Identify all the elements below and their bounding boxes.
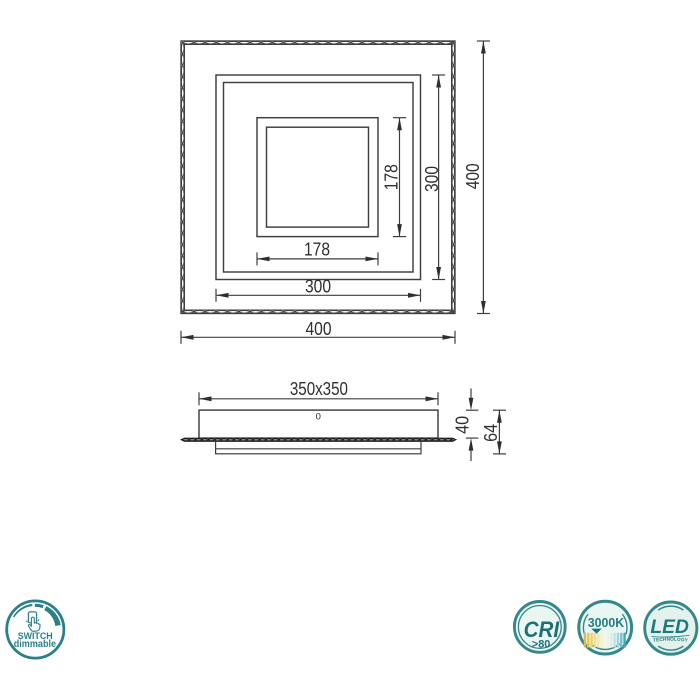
svg-text:LED: LED	[650, 617, 689, 638]
svg-text:dimmable: dimmable	[14, 639, 57, 650]
svg-text:300: 300	[422, 166, 442, 192]
svg-text:>80: >80	[532, 638, 551, 650]
svg-text:3000K: 3000K	[588, 616, 624, 630]
svg-text:40: 40	[452, 416, 472, 434]
svg-text:350x350: 350x350	[290, 379, 348, 399]
svg-text:178: 178	[304, 240, 330, 260]
svg-text:400: 400	[463, 163, 483, 189]
svg-text:64: 64	[481, 424, 501, 442]
svg-text:400: 400	[306, 319, 332, 339]
svg-text:178: 178	[382, 164, 402, 190]
svg-text:0: 0	[316, 412, 321, 423]
svg-text:300: 300	[305, 277, 331, 297]
